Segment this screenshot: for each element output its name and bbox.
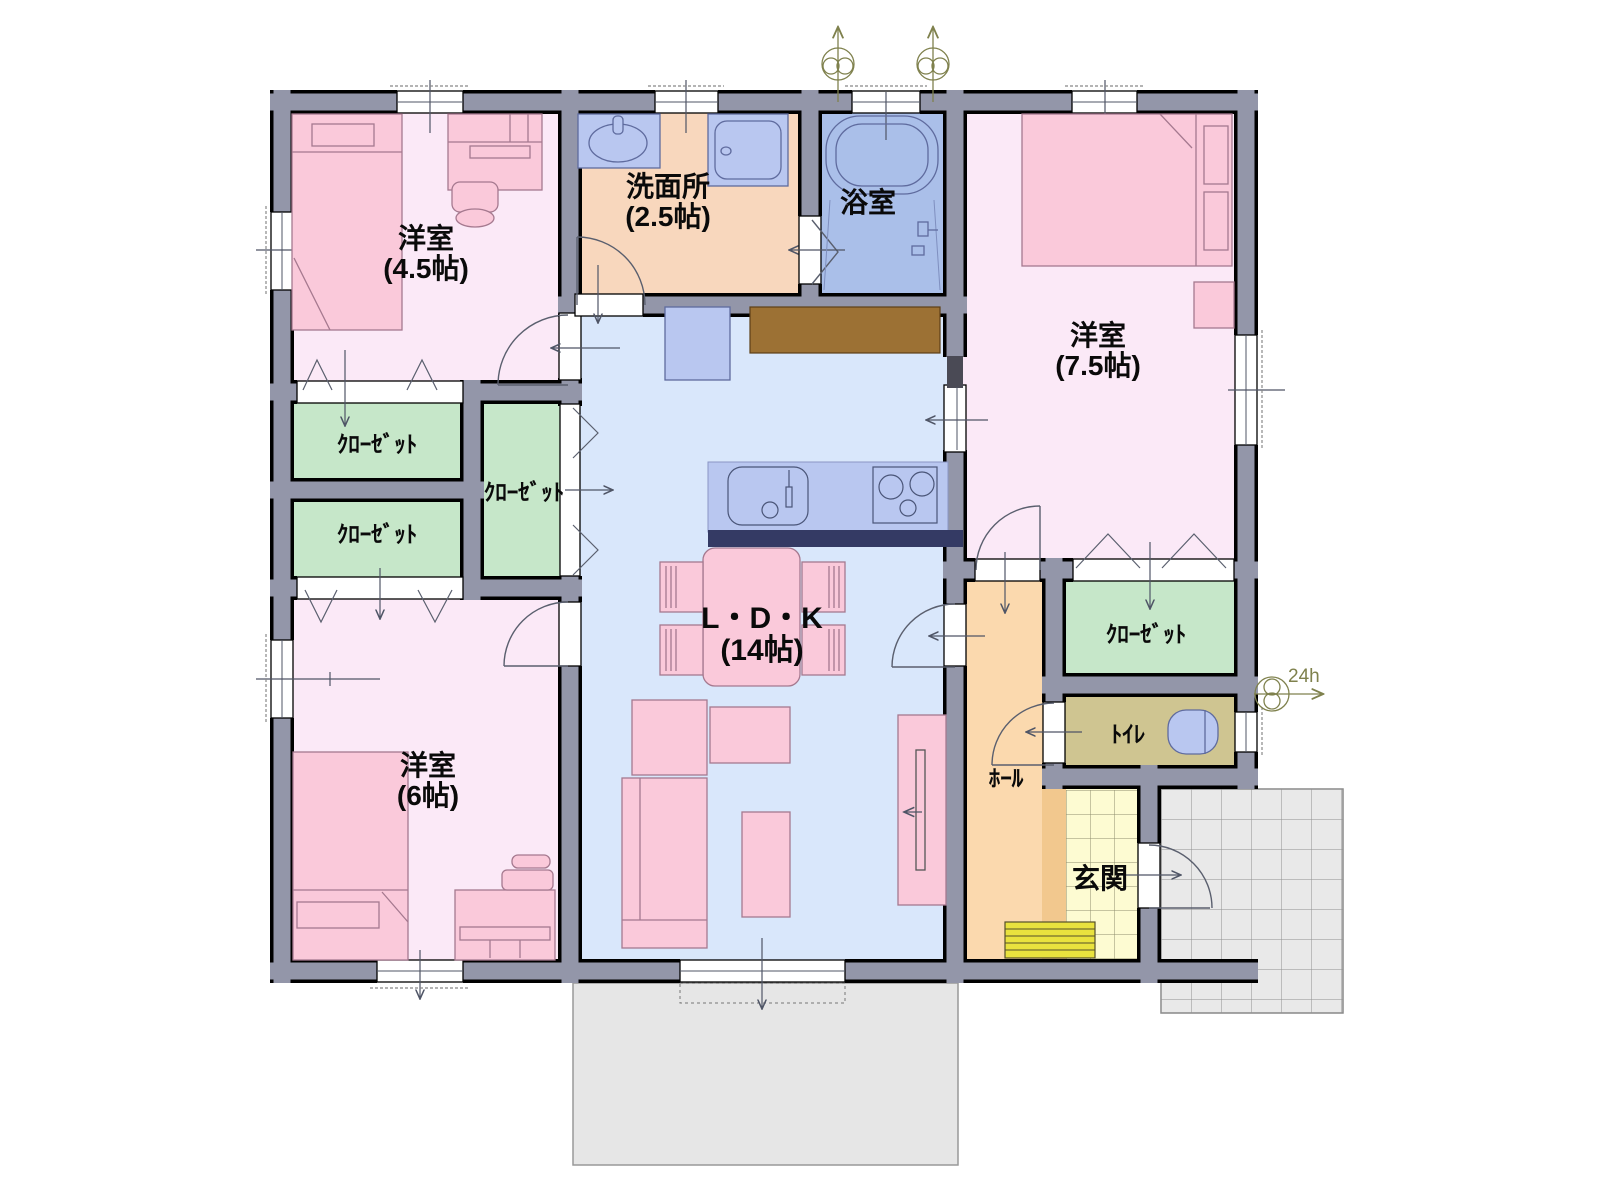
room-label-closet-3: ｸﾛｰｾﾞｯﾄ — [484, 479, 565, 505]
shoe-cabinet — [1005, 922, 1095, 958]
room-label-bathroom: 浴室 — [840, 186, 896, 218]
room-label-closet-2: ｸﾛｰｾﾞｯﾄ — [337, 521, 418, 547]
door-gap-sliding — [944, 385, 966, 452]
room-size-bedroom45: (4.5帖) — [383, 253, 469, 284]
door-gap-washroom — [575, 294, 643, 316]
bed-double — [1022, 114, 1232, 266]
closet-opening-right — [1073, 559, 1234, 581]
door-gap-bedroom6 — [559, 602, 581, 666]
room-size-ldk: (14帖) — [720, 634, 803, 667]
coffee-table — [742, 812, 790, 917]
desk-chair — [452, 182, 498, 227]
room-size-washroom: (2.5帖) — [625, 201, 711, 232]
bed-single — [292, 114, 402, 330]
tv-board — [898, 715, 946, 905]
floor-cushion — [632, 700, 707, 775]
room-label-toilet: ﾄｲﾚ — [1111, 721, 1146, 747]
counter-front-bar — [708, 530, 963, 547]
wash-basin — [578, 114, 660, 168]
sofa — [622, 778, 707, 948]
room-label-bedroom6: 洋室 — [400, 749, 456, 781]
refrigerator — [665, 307, 730, 380]
door-gap-bedroom45 — [559, 313, 581, 380]
vent-24h-label: 24h — [1288, 666, 1320, 687]
kitchen-counter — [708, 462, 948, 532]
floor-plan: 洋室 (4.5帖) 洗面所 (2.5帖) 浴室 洋室 (7.5帖) L・D・K … — [0, 0, 1600, 1200]
room-label-closet-1: ｸﾛｰｾﾞｯﾄ — [337, 431, 418, 457]
desk-2 — [455, 890, 555, 960]
desk — [448, 114, 542, 190]
bed-single-2 — [293, 752, 408, 960]
wood-deck — [573, 983, 958, 1165]
side-table — [710, 707, 790, 763]
room-label-hall: ﾎｰﾙ — [989, 765, 1024, 791]
room-label-entrance: 玄関 — [1072, 862, 1128, 894]
washing-machine — [708, 114, 788, 186]
room-label-bedroom75: 洋室 — [1070, 319, 1126, 351]
room-size-bedroom6: (6帖) — [397, 780, 459, 811]
closet-opening-top-1 — [297, 381, 463, 403]
nightstand — [1194, 282, 1234, 328]
sliding-door-panel — [947, 356, 963, 388]
room-label-bedroom45: 洋室 — [398, 222, 454, 254]
room-size-bedroom75: (7.5帖) — [1055, 350, 1141, 381]
door-gap-ldk-hall — [944, 604, 966, 666]
toilet-fixture — [1168, 710, 1218, 754]
door-gap-bedroom75-hall — [975, 559, 1040, 581]
kitchen-cupboard — [750, 307, 940, 353]
room-label-washroom: 洗面所 — [626, 171, 710, 202]
room-label-closet-4: ｸﾛｰｾﾞｯﾄ — [1106, 621, 1187, 647]
room-label-ldk: L・D・K — [701, 602, 823, 635]
